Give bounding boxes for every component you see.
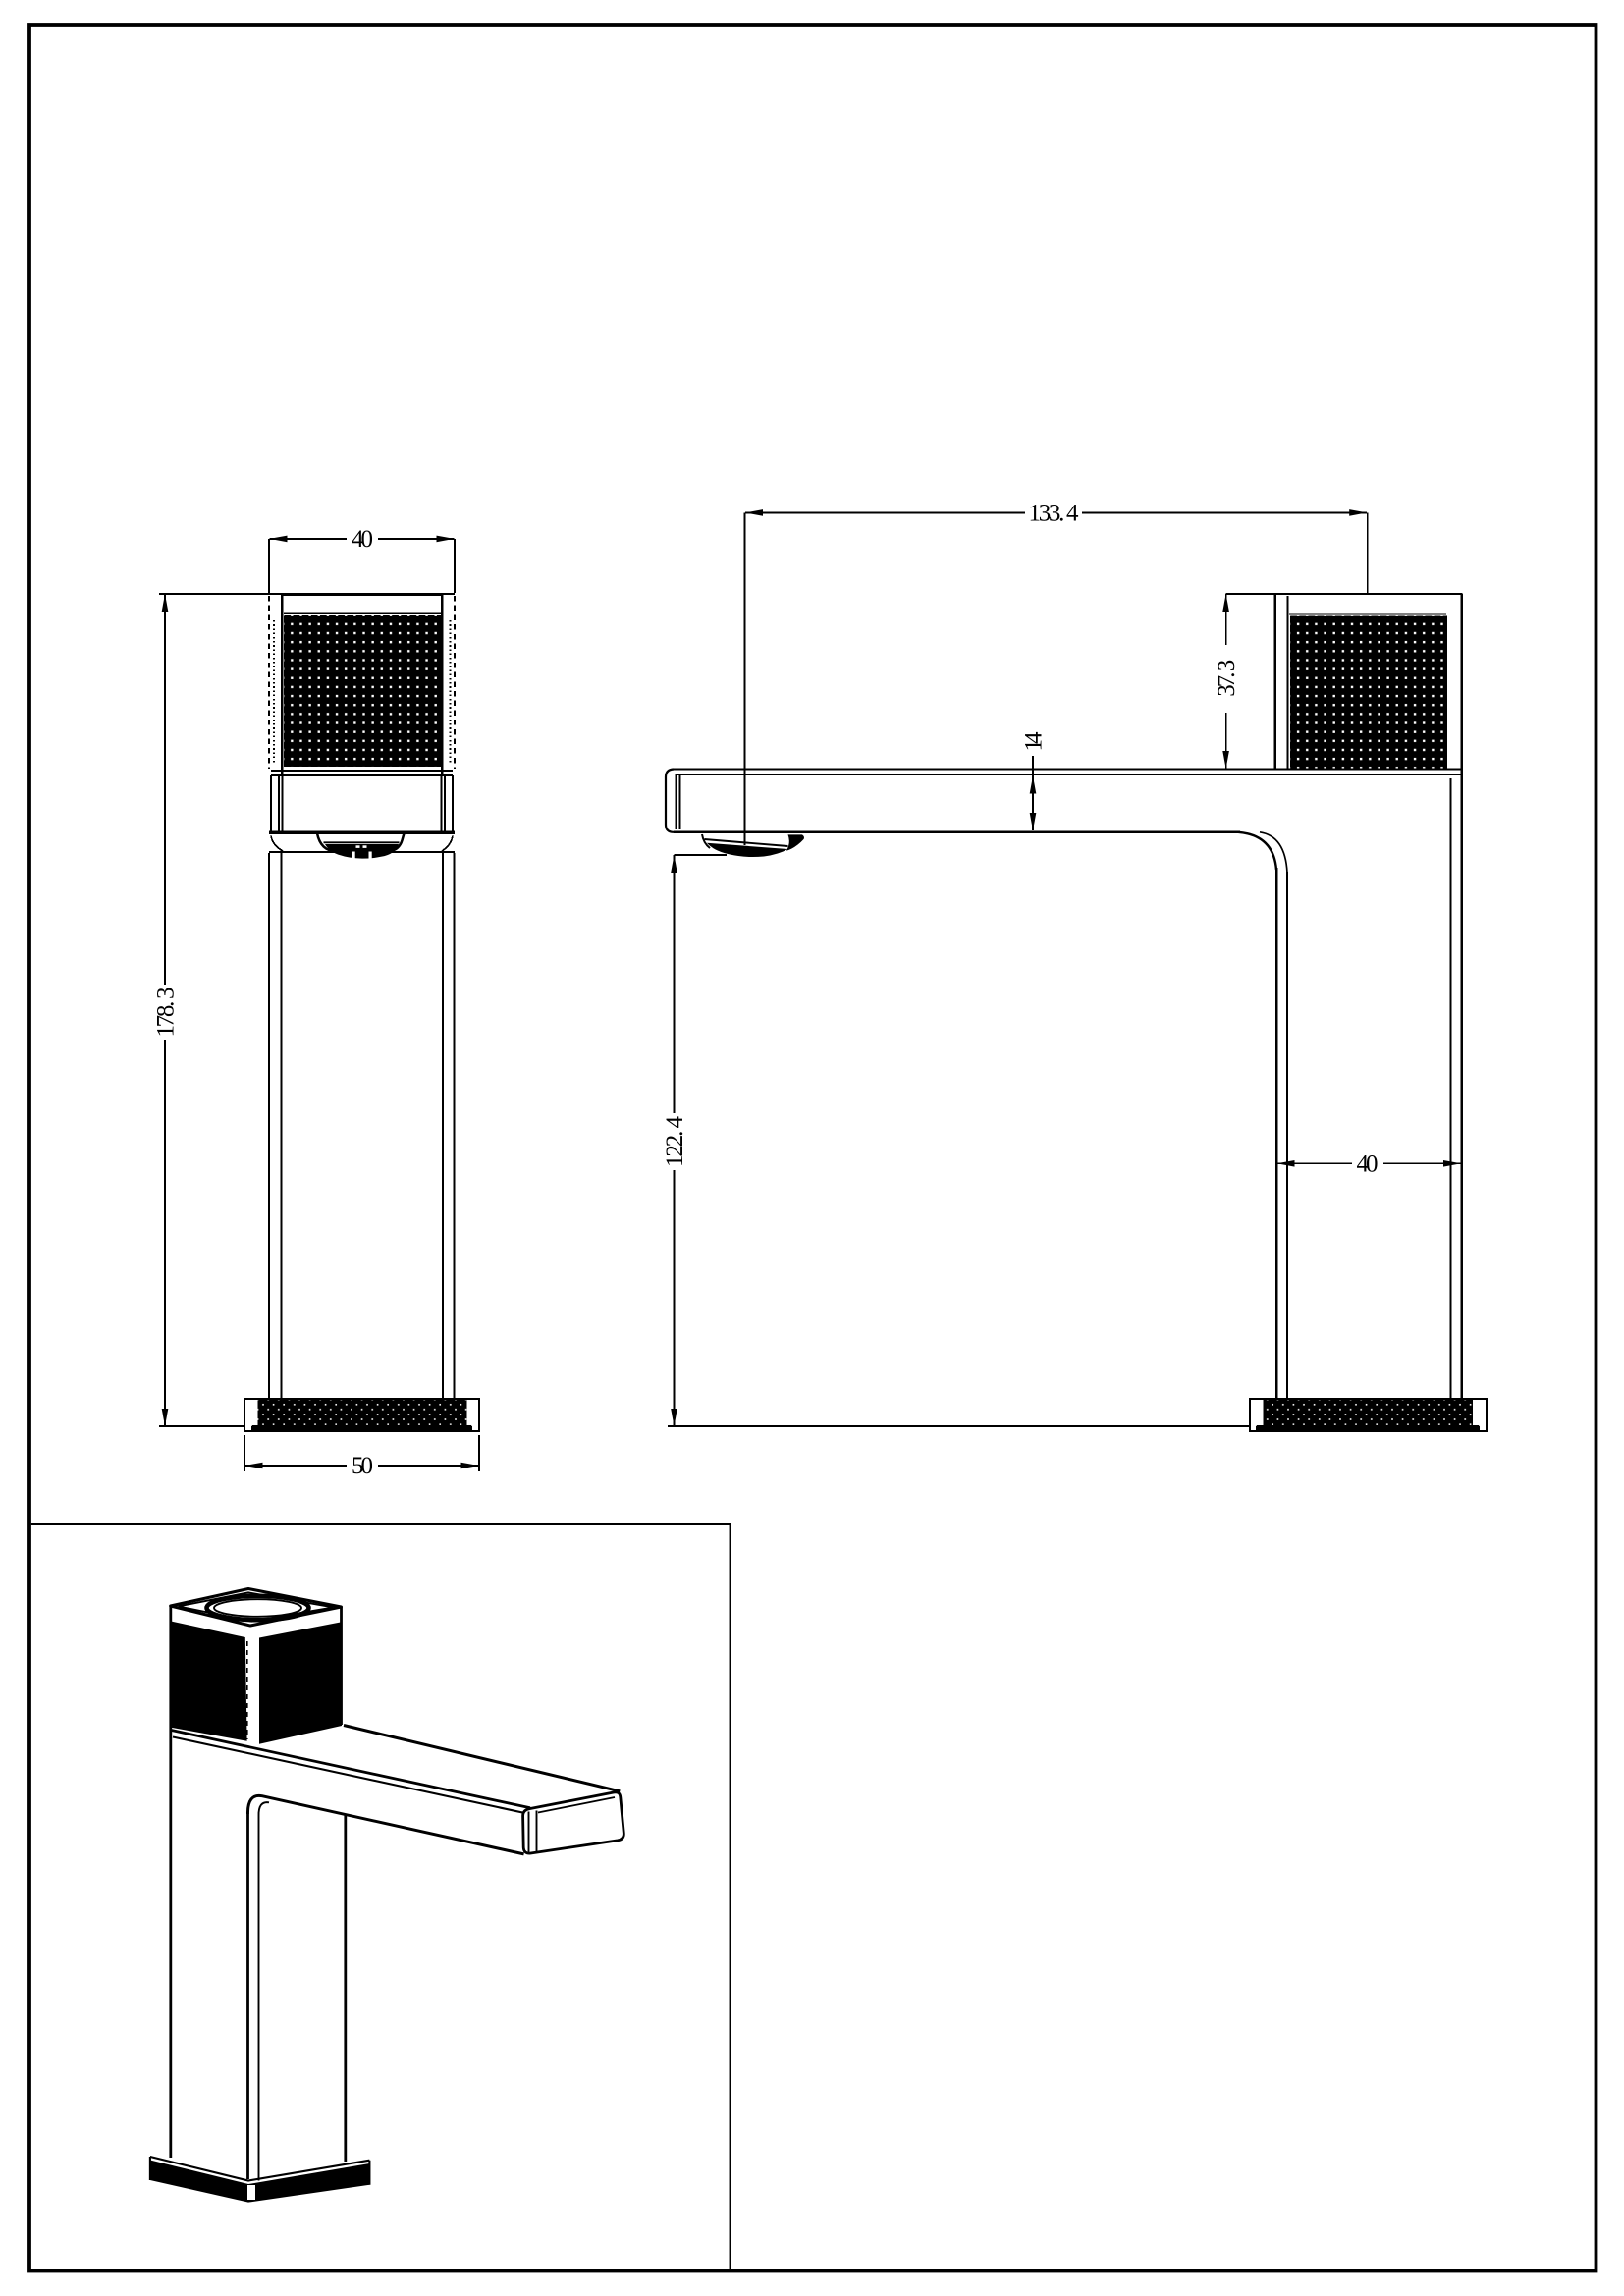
svg-text:37. 3: 37. 3 (1214, 660, 1240, 697)
svg-text:122. 4: 122. 4 (662, 1116, 688, 1168)
svg-text:133. 4: 133. 4 (1029, 501, 1080, 527)
svg-text:14: 14 (1021, 731, 1048, 752)
svg-text:178. 3: 178. 3 (153, 988, 180, 1038)
svg-text:40: 40 (352, 526, 373, 553)
svg-text:40: 40 (1357, 1150, 1379, 1177)
svg-text:50: 50 (352, 1453, 373, 1479)
